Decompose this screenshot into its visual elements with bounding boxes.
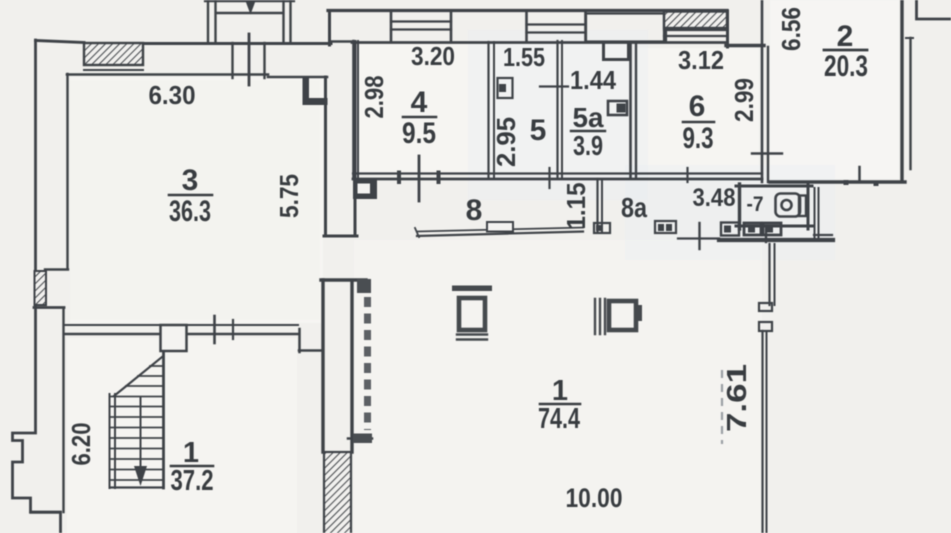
svg-text:2.99: 2.99 <box>729 78 759 122</box>
svg-text:4: 4 <box>411 86 428 119</box>
svg-text:3.9: 3.9 <box>573 130 603 161</box>
svg-text:3.12: 3.12 <box>678 45 724 75</box>
svg-text:2: 2 <box>837 20 854 53</box>
svg-text:8a: 8a <box>621 192 647 223</box>
svg-text:37.2: 37.2 <box>171 465 214 497</box>
svg-text:36.3: 36.3 <box>169 195 211 228</box>
svg-text:8: 8 <box>466 194 483 227</box>
svg-text:5: 5 <box>530 114 547 147</box>
svg-text:5a: 5a <box>573 102 604 133</box>
svg-text:20.3: 20.3 <box>824 50 868 83</box>
svg-text:9.3: 9.3 <box>683 122 714 155</box>
svg-text:3: 3 <box>182 164 199 197</box>
svg-text:3.48: 3.48 <box>693 184 736 212</box>
svg-text:10.00: 10.00 <box>566 483 623 513</box>
svg-text:1.44: 1.44 <box>570 65 616 95</box>
svg-text:3.20: 3.20 <box>411 41 455 71</box>
svg-text:6: 6 <box>689 90 706 123</box>
svg-text:6.20: 6.20 <box>66 423 96 466</box>
svg-text:5.75: 5.75 <box>274 174 304 218</box>
svg-text:-7: -7 <box>747 193 764 216</box>
svg-text:74.4: 74.4 <box>538 403 580 435</box>
svg-text:9.5: 9.5 <box>402 117 436 150</box>
svg-text:7.61: 7.61 <box>721 364 752 432</box>
svg-text:6.56: 6.56 <box>776 7 806 51</box>
svg-text:2.98: 2.98 <box>359 76 389 119</box>
svg-text:1.15: 1.15 <box>561 183 591 230</box>
svg-text:1.55: 1.55 <box>503 42 545 72</box>
svg-text:6.30: 6.30 <box>149 80 196 110</box>
svg-text:2.95: 2.95 <box>491 117 521 167</box>
